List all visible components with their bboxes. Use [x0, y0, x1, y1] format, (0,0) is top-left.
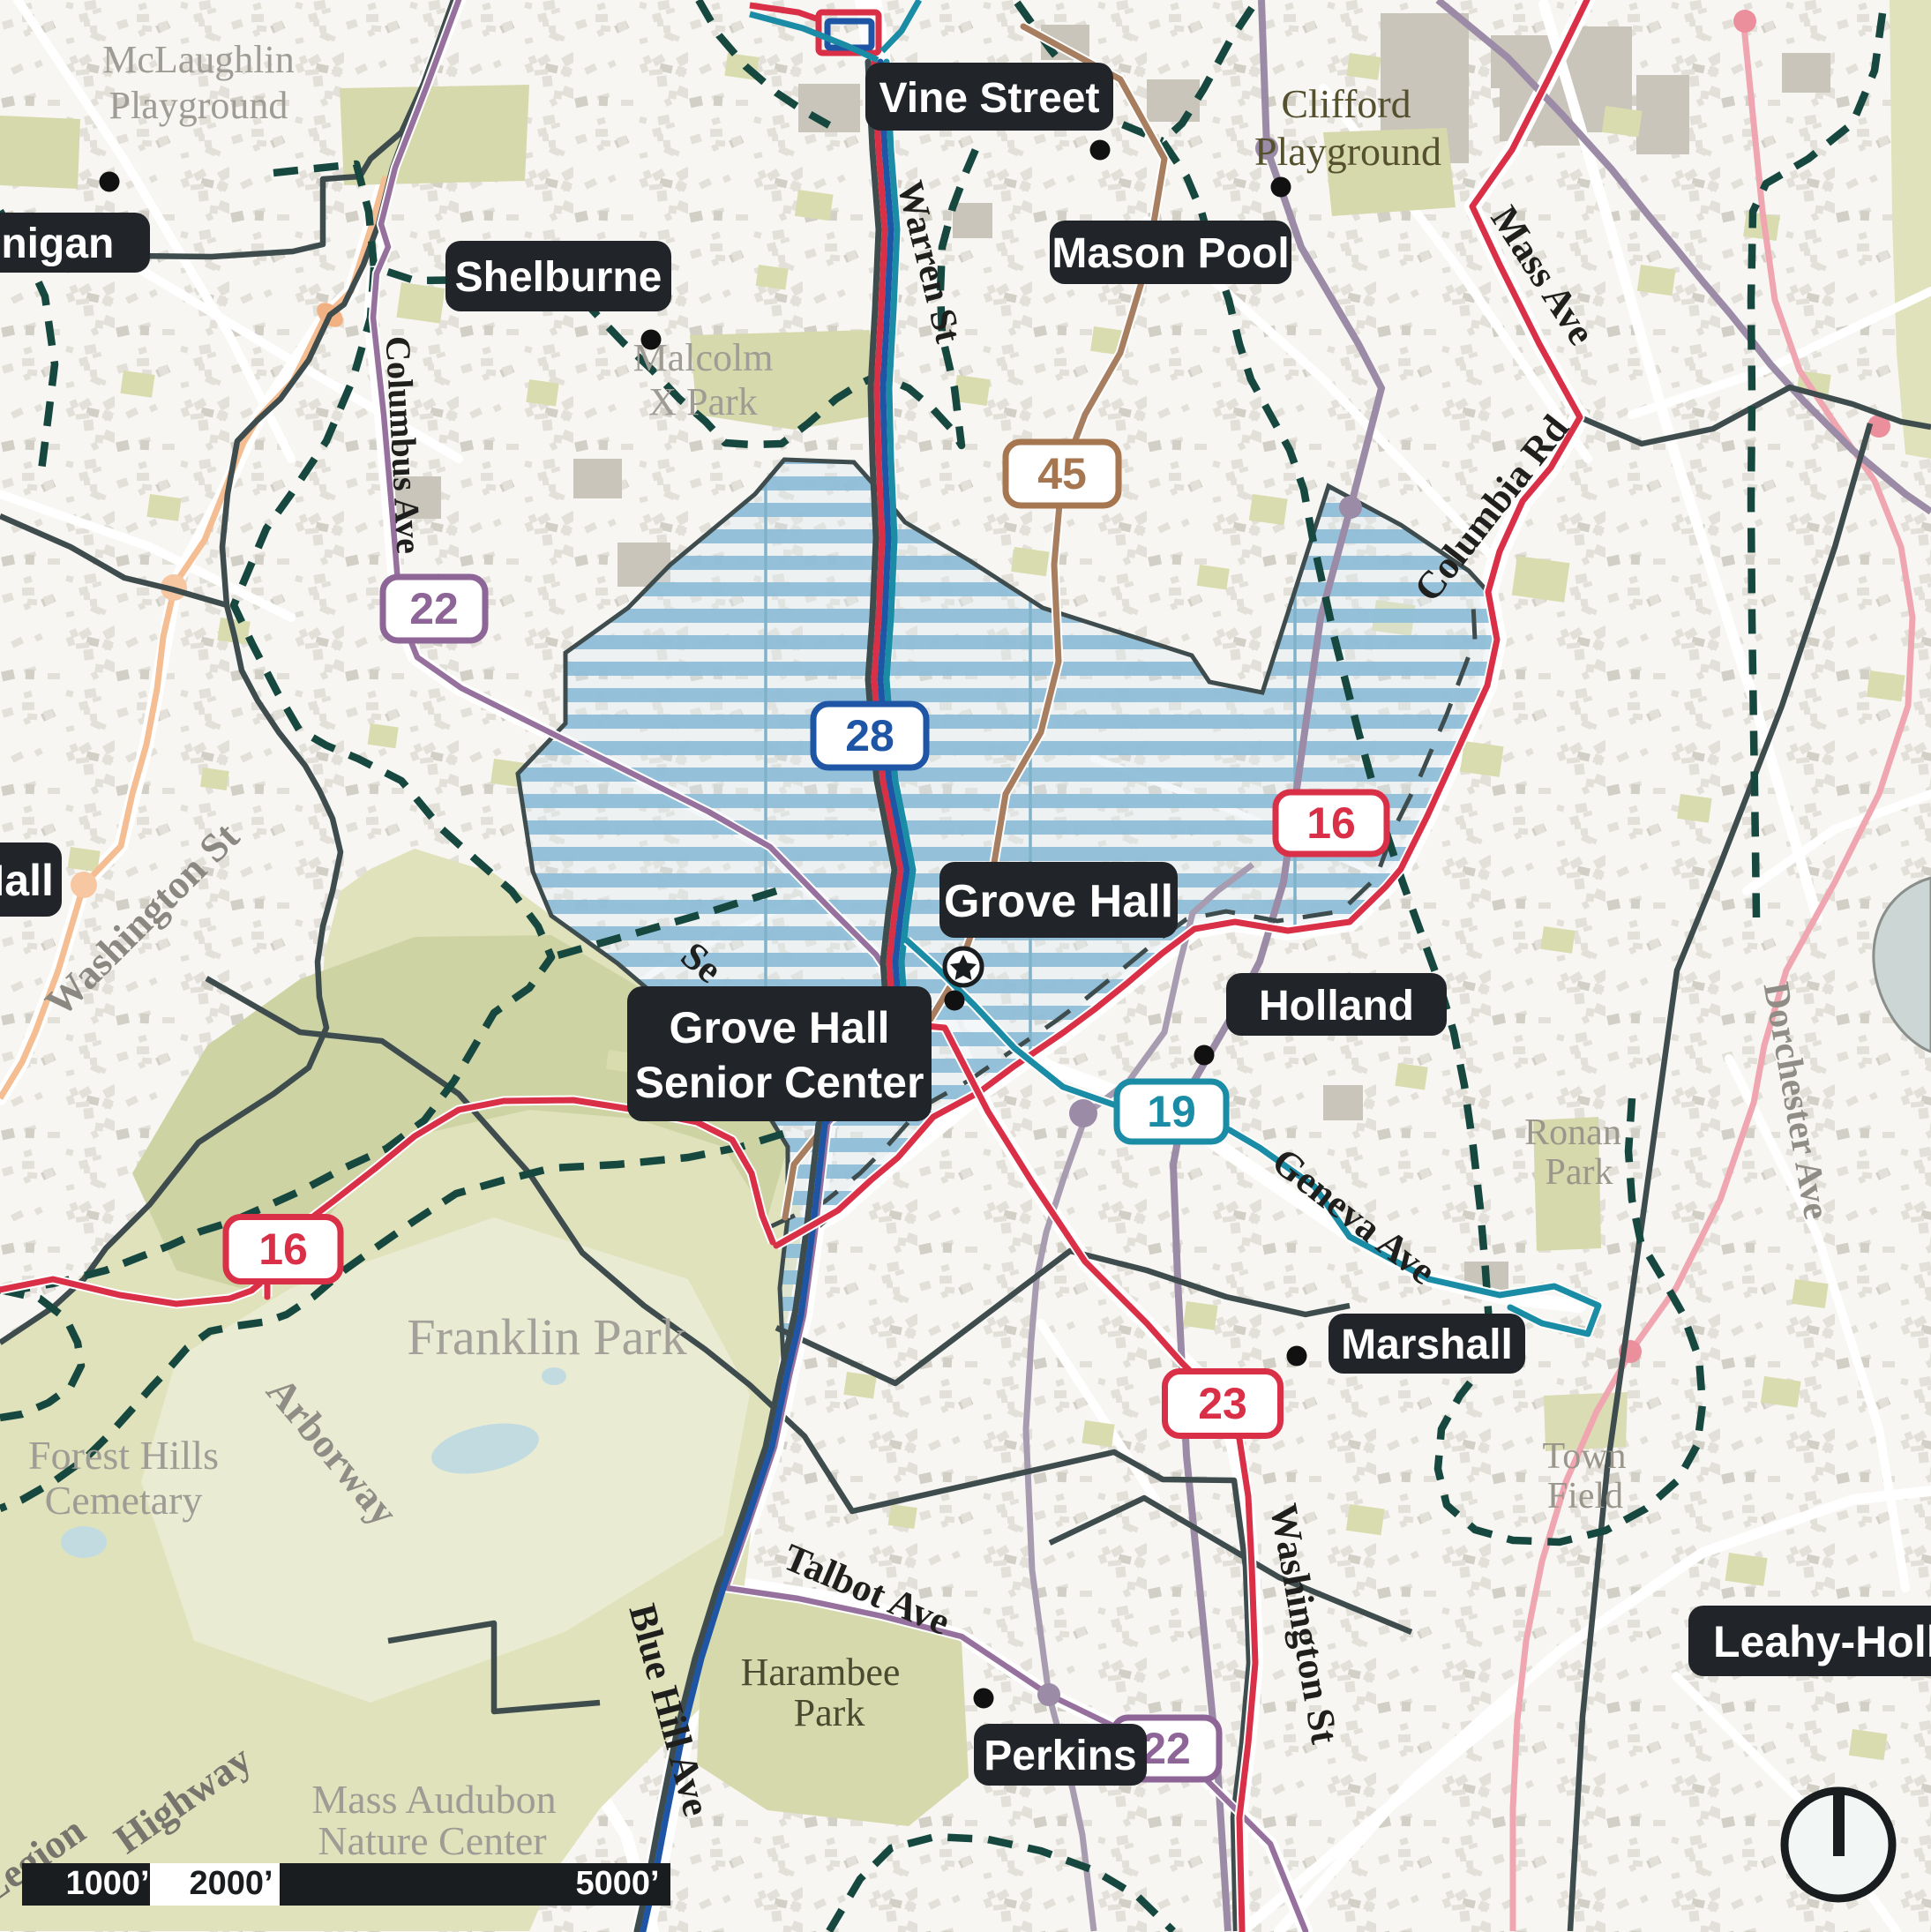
svg-text:Vine Street: Vine Street [879, 75, 1100, 122]
svg-text:23: 23 [1198, 1379, 1247, 1428]
svg-text:Leahy-Holloran: Leahy-Holloran [1713, 1617, 1931, 1666]
svg-text:16: 16 [1306, 798, 1356, 848]
svg-text:Grove Hall: Grove Hall [669, 1003, 889, 1052]
svg-text:Malcolm: Malcolm [633, 336, 774, 379]
svg-text:Grove Hall: Grove Hall [944, 876, 1173, 927]
svg-text:Mason Pool: Mason Pool [1052, 230, 1289, 277]
svg-text:22: 22 [1141, 1724, 1191, 1773]
svg-text:Clifford: Clifford [1281, 81, 1411, 126]
svg-text:Park: Park [794, 1691, 865, 1734]
svg-text:45: 45 [1037, 449, 1087, 498]
svg-text:16: 16 [258, 1224, 308, 1274]
svg-text:22: 22 [409, 584, 459, 633]
svg-text:1000’: 1000’ [65, 1865, 149, 1902]
svg-text:X Park: X Park [648, 380, 757, 423]
svg-text:2000’: 2000’ [189, 1865, 273, 1902]
svg-text:Harambee: Harambee [741, 1651, 901, 1694]
svg-text:Nature Center: Nature Center [318, 1818, 546, 1863]
svg-text:Hall: Hall [0, 856, 54, 905]
svg-text:Shelburne: Shelburne [455, 254, 662, 301]
svg-text:Holland: Holland [1259, 983, 1414, 1030]
svg-text:Perkins: Perkins [984, 1733, 1136, 1779]
svg-text:5000’: 5000’ [575, 1865, 659, 1902]
svg-text:Hennigan: Hennigan [0, 221, 114, 267]
svg-text:McLaughlin: McLaughlin [102, 38, 295, 81]
svg-text:Town: Town [1542, 1436, 1626, 1477]
svg-text:Forest Hills: Forest Hills [28, 1433, 219, 1478]
svg-text:28: 28 [845, 711, 894, 760]
svg-text:Franklin Park: Franklin Park [407, 1308, 686, 1366]
svg-text:Cemetary: Cemetary [45, 1478, 203, 1523]
svg-text:Mass Audubon: Mass Audubon [311, 1777, 556, 1822]
svg-text:19: 19 [1147, 1087, 1196, 1136]
svg-text:Marshall: Marshall [1341, 1322, 1513, 1368]
svg-text:Playground: Playground [1254, 129, 1441, 174]
svg-text:Playground: Playground [109, 84, 288, 127]
svg-text:Park: Park [1546, 1152, 1613, 1193]
svg-text:Senior Center: Senior Center [635, 1058, 924, 1107]
svg-text:Ronan: Ronan [1524, 1112, 1621, 1153]
svg-text:Field: Field [1547, 1476, 1623, 1516]
